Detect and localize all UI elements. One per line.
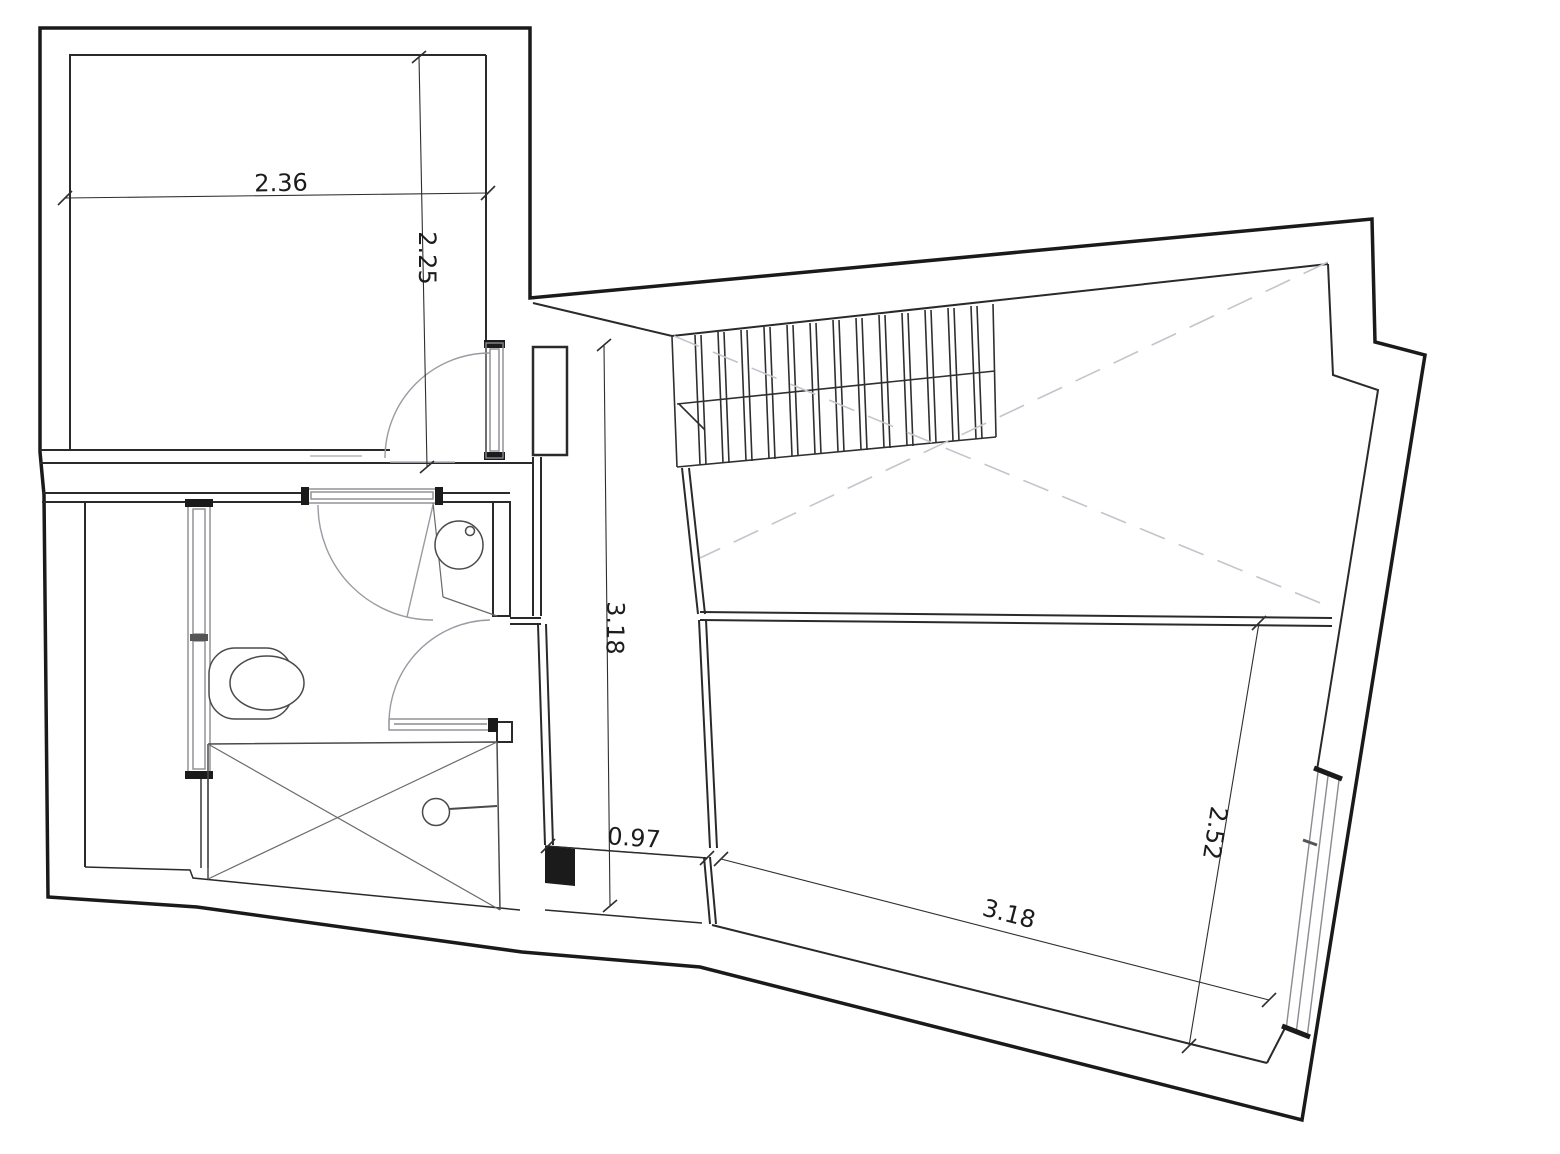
shower-head [423, 799, 450, 826]
room-divider-b [700, 620, 1332, 626]
void-diagonal-2 [674, 336, 1330, 607]
window-cap-top [185, 499, 213, 507]
shower-cross-2 [208, 742, 497, 879]
door-swing-arc [389, 620, 490, 724]
door-leaf [486, 343, 503, 458]
corridor-left-d [546, 624, 553, 845]
hall-room-wall-a [682, 468, 698, 614]
bathroom-top-window [301, 487, 443, 620]
floor-plan-drawing: 2.36 2.25 3.18 0.97 3.18 2.52 [0, 0, 1560, 1154]
shower-cross-1 [208, 744, 500, 910]
shower [208, 742, 500, 910]
window-cap-bottom [185, 771, 213, 779]
window-cap-left [301, 487, 309, 505]
hall-room-wall-b [689, 468, 705, 614]
windows [185, 487, 1342, 1038]
window-cap-right [435, 487, 443, 505]
passage-wall-chunk [545, 846, 575, 886]
window-swing-leaf [407, 505, 433, 617]
window-swing-arc [318, 505, 433, 620]
dimension-label-hall-depth: 3.18 [601, 601, 630, 655]
right-section-top-inner [533, 264, 1328, 336]
dimension-main-room-width [714, 852, 1276, 1007]
dimension-labels: 2.36 2.25 3.18 0.97 3.18 2.52 [254, 169, 1233, 935]
passage-wall-mid [545, 910, 702, 923]
sink-bowl [435, 521, 483, 569]
sink-tap [466, 527, 475, 536]
floor-plan-canvas: 2.36 2.25 3.18 0.97 3.18 2.52 [0, 0, 1560, 1154]
sink-counter-edge-b [443, 597, 497, 616]
stair-treads [695, 306, 982, 465]
dimensions [58, 51, 1276, 1053]
bathroom-fixtures [208, 503, 500, 910]
top-room-door [310, 340, 505, 462]
door-swing-arc [385, 353, 490, 458]
washbasin-sink [433, 503, 497, 616]
bathroom-door [389, 620, 498, 732]
door-cap-bottom [484, 452, 505, 460]
bath-right-pier-lower [497, 722, 512, 742]
right-wall-inner-low [1267, 1028, 1285, 1063]
bottom-jog-b [710, 857, 716, 924]
window-cap-bottom [1282, 1026, 1310, 1037]
bottom-jog-a [704, 857, 710, 924]
outer-walls [40, 28, 1425, 1120]
main-room-right-window [1282, 768, 1342, 1038]
window-cap-mid [190, 634, 208, 641]
dim-tick [1262, 993, 1276, 1007]
corridor-left-c [538, 624, 545, 845]
dim-tick [714, 852, 728, 866]
void-cross [674, 262, 1330, 607]
dimension-label-passage-width: 0.97 [606, 822, 661, 854]
dimension-label-top-room-depth: 2.25 [413, 231, 441, 284]
shower-arm [449, 806, 497, 809]
room-divider-a [700, 612, 1332, 618]
dim-tick [1182, 1039, 1196, 1053]
dimension-label-top-room-width: 2.36 [254, 169, 308, 198]
toilet [209, 648, 304, 719]
bath-right-pier-upper [493, 502, 510, 616]
dimension-label-main-room-depth: 2.52 [1197, 804, 1233, 861]
building-outline [40, 28, 1425, 1120]
void-diagonal-1 [700, 262, 1328, 558]
stair-left-edge [672, 337, 677, 467]
stair-start-mark [679, 404, 705, 430]
door-cap-top [484, 340, 505, 348]
hall-top-pier [533, 347, 567, 455]
staircase [672, 304, 996, 467]
door-hinge-cap [488, 718, 498, 732]
